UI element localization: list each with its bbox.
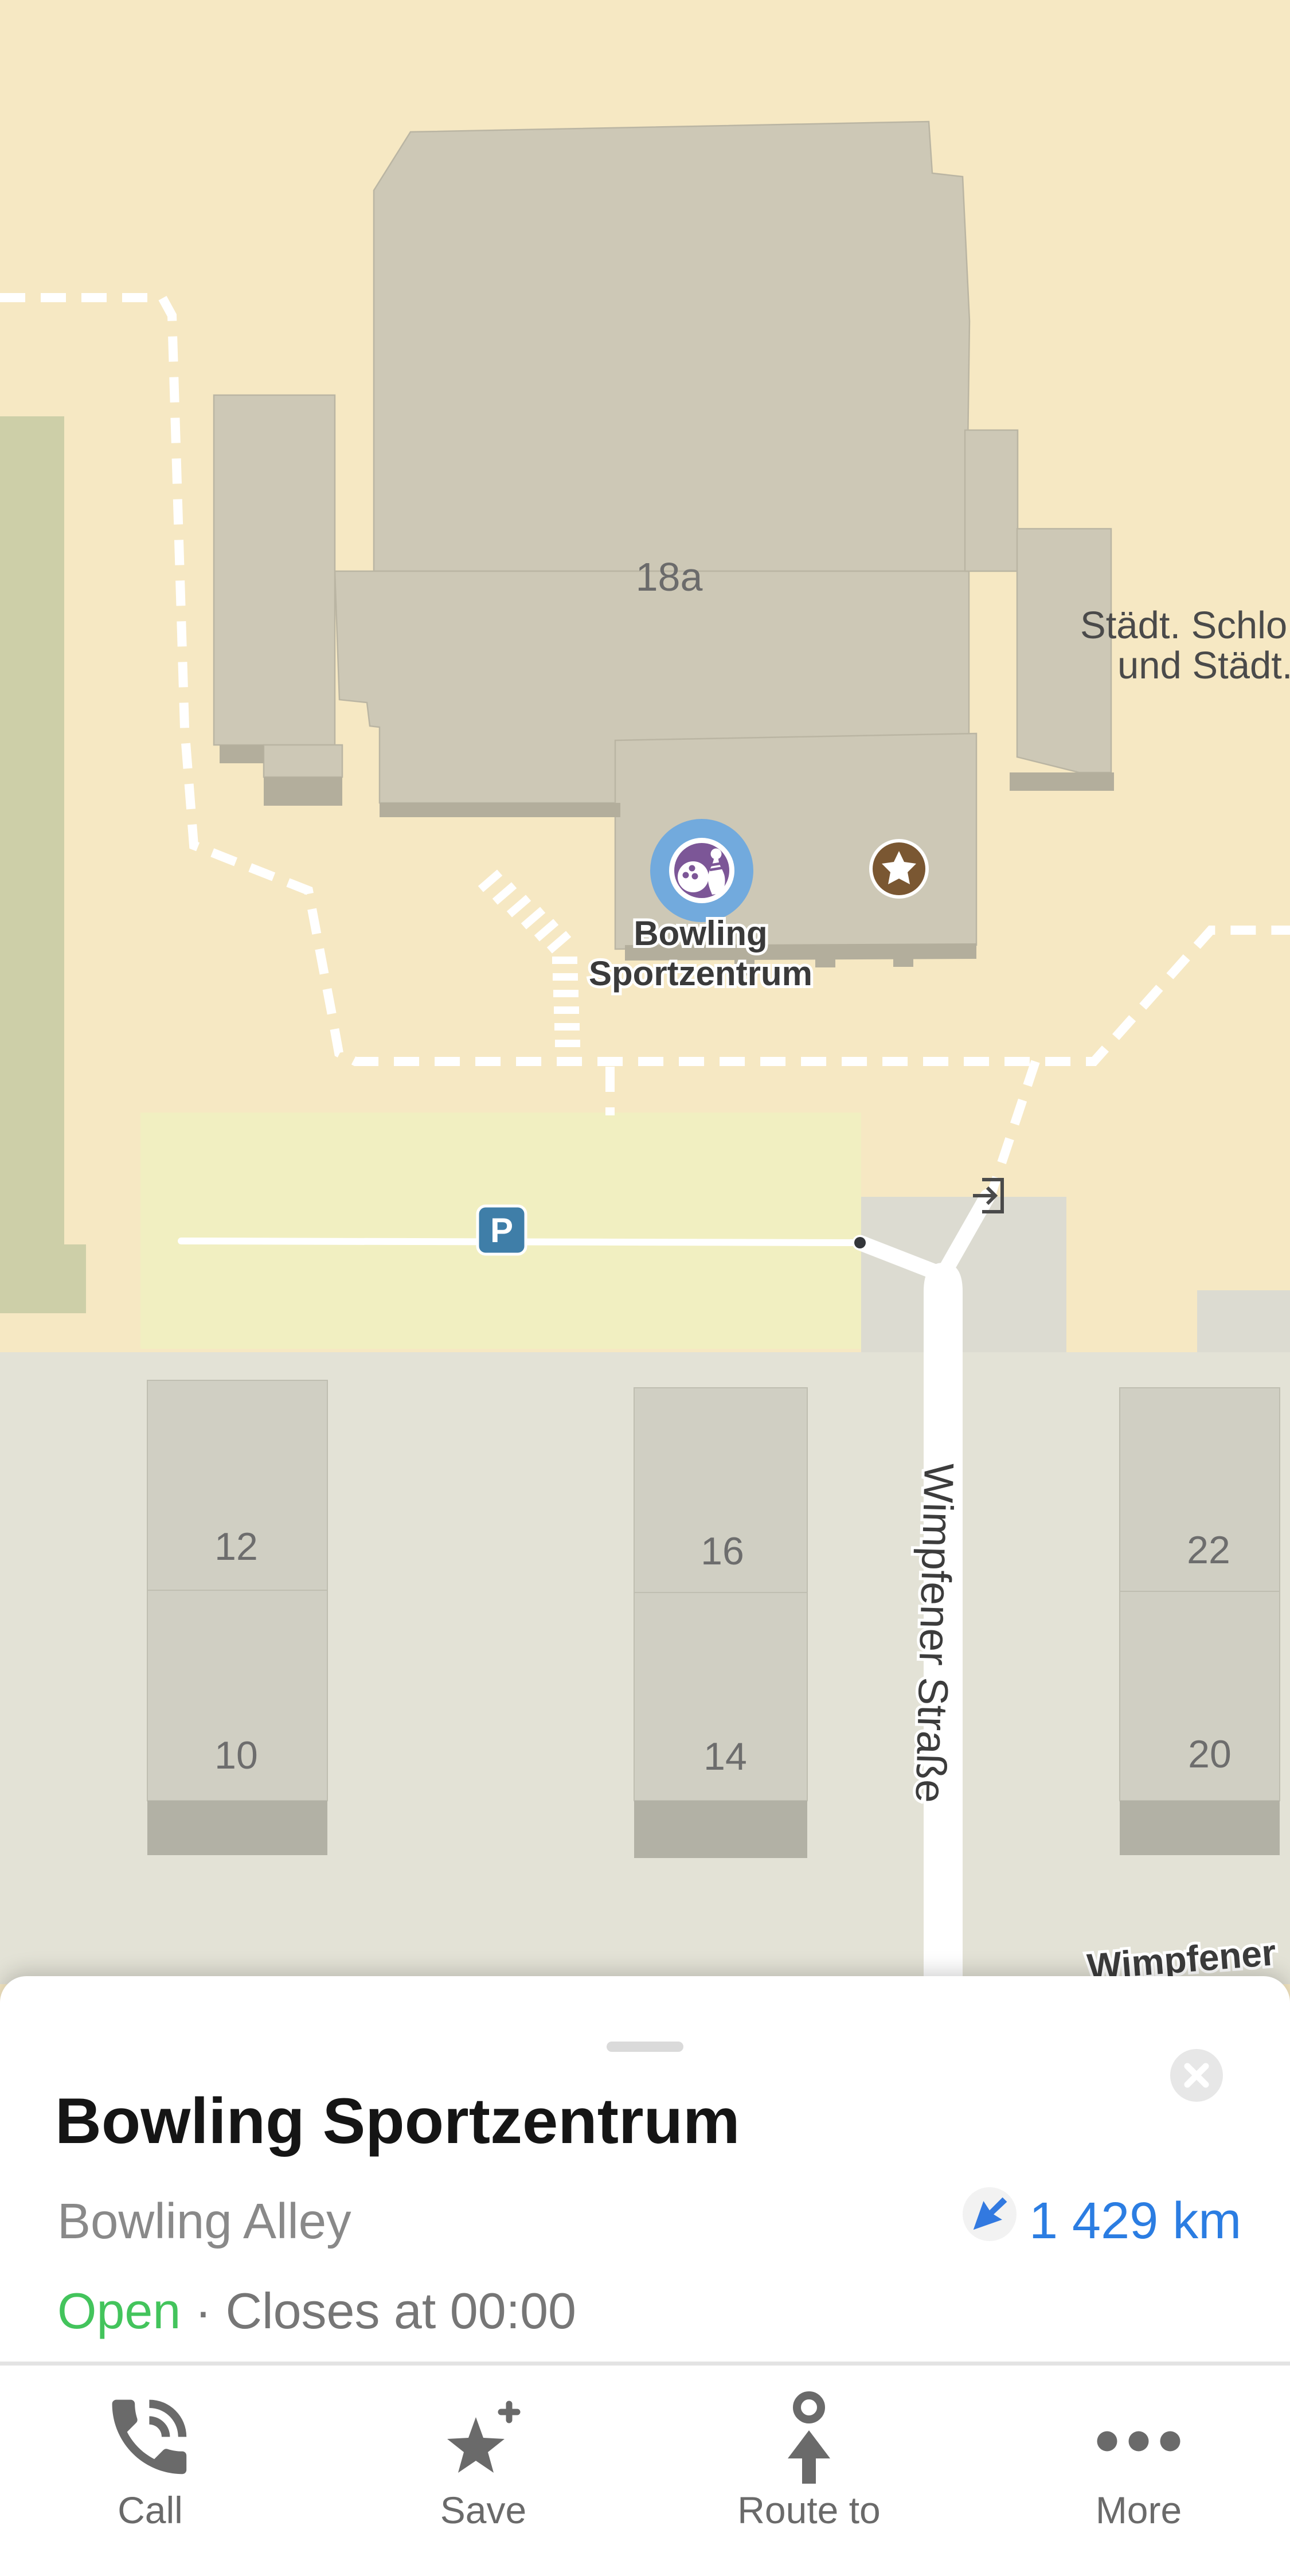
svg-text:und Städt.: und Städt. bbox=[1117, 644, 1290, 687]
svg-text:Städt. Schlo: Städt. Schlo bbox=[1080, 604, 1287, 647]
svg-text:14: 14 bbox=[703, 1735, 747, 1778]
svg-text:16: 16 bbox=[701, 1529, 744, 1573]
svg-text:20: 20 bbox=[1188, 1732, 1232, 1776]
svg-text:Sportzentrum: Sportzentrum bbox=[589, 954, 812, 993]
svg-text:18a: 18a bbox=[636, 555, 703, 599]
svg-text:12: 12 bbox=[214, 1525, 258, 1568]
svg-text:10: 10 bbox=[214, 1734, 258, 1777]
svg-text:P: P bbox=[490, 1211, 513, 1250]
svg-text:Bowling: Bowling bbox=[634, 914, 767, 953]
svg-text:Wimpfener Straße: Wimpfener Straße bbox=[907, 1463, 962, 1804]
svg-text:22: 22 bbox=[1187, 1528, 1230, 1572]
